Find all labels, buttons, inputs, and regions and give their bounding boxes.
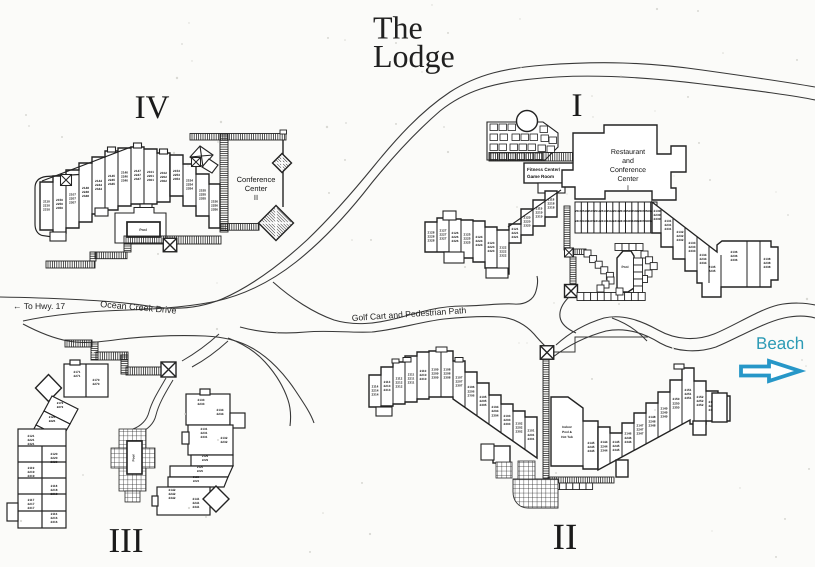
svg-text:214122412341: 214122412341 <box>193 497 200 509</box>
svg-text:211722172317: 211722172317 <box>28 498 35 510</box>
svg-text:212022202320: 212022202320 <box>524 215 531 227</box>
svg-text:Beach: Beach <box>756 334 804 353</box>
svg-text:214922492349: 214922492349 <box>661 406 668 418</box>
svg-text:215622562356: 215622562356 <box>211 199 218 211</box>
svg-text:211422142314: 211422142314 <box>372 384 379 396</box>
svg-text:213422342334: 213422342334 <box>700 253 707 265</box>
svg-text:211822182318: 211822182318 <box>51 484 58 496</box>
svg-text:21712271: 21712271 <box>74 370 81 378</box>
svg-text:211222122312: 211222122312 <box>396 376 403 388</box>
svg-text:212122212321: 212122212321 <box>512 227 519 239</box>
svg-text:211022102310: 211022102310 <box>420 369 427 381</box>
svg-text:21702270: 21702270 <box>93 378 100 386</box>
svg-text:21722272: 21722272 <box>57 401 64 409</box>
svg-text:213122312331: 213122312331 <box>665 219 672 231</box>
svg-text:215222522352: 215222522352 <box>697 395 704 407</box>
svg-text:214822482348: 214822482348 <box>649 415 656 427</box>
svg-text:210722072307: 210722072307 <box>69 192 76 204</box>
svg-text:213122312331: 213122312331 <box>201 427 208 439</box>
svg-text:212022202320: 212022202320 <box>51 452 58 464</box>
svg-text:210122012301: 210122012301 <box>147 170 154 182</box>
svg-text:212522252325: 212522252325 <box>464 232 471 244</box>
svg-text:215022502350: 215022502350 <box>56 198 63 210</box>
svg-text:210822082308: 210822082308 <box>444 367 451 379</box>
svg-text:215022502350: 215022502350 <box>673 397 680 409</box>
svg-text:210422042304: 210422042304 <box>492 405 499 417</box>
svg-text:III: III <box>109 521 144 560</box>
svg-text:210522052305: 210522052305 <box>480 395 487 407</box>
svg-text:214522452345: 214522452345 <box>588 441 595 453</box>
svg-text:214622462346: 214622462346 <box>625 432 632 444</box>
svg-text:IndoorPool &Hot Tub: IndoorPool &Hot Tub <box>561 425 573 439</box>
svg-text:21292229: 21292229 <box>202 454 209 462</box>
svg-text:21232223: 21232223 <box>193 475 200 483</box>
svg-text:210122012301: 210122012301 <box>528 429 535 441</box>
svg-text:I: I <box>572 88 583 124</box>
svg-text:215322532353: 215322532353 <box>173 169 180 181</box>
svg-text:215122512351: 215122512351 <box>685 388 692 400</box>
svg-text:Pool: Pool <box>132 454 136 461</box>
svg-text:210722072307: 210722072307 <box>456 375 463 387</box>
svg-text:215422542354: 215422542354 <box>186 178 193 190</box>
svg-text:213822382338: 213822382338 <box>764 257 771 269</box>
svg-text:II: II <box>553 517 578 558</box>
svg-text:21252225: 21252225 <box>49 415 56 423</box>
svg-text:210222022302: 210222022302 <box>516 422 523 434</box>
svg-text:211622162316: 211622162316 <box>51 512 58 524</box>
svg-text:214822482348: 214822482348 <box>82 186 89 198</box>
svg-text:211922192319: 211922192319 <box>536 206 543 218</box>
svg-text:211022102310: 211022102310 <box>43 199 50 211</box>
svg-text:211322132313: 211322132313 <box>384 380 391 392</box>
svg-text:214722472347: 214722472347 <box>134 169 141 181</box>
svg-text:212622262326: 212622262326 <box>452 231 459 243</box>
svg-text:Pool: Pool <box>622 265 629 269</box>
svg-text:214522452345: 214522452345 <box>613 440 620 452</box>
svg-text:210322032303: 210322032303 <box>504 414 511 426</box>
svg-text:211122112311: 211122112311 <box>408 372 415 384</box>
svg-text:21352235: 21352235 <box>709 265 716 273</box>
svg-text:IV: IV <box>135 90 170 126</box>
svg-text:213222322332: 213222322332 <box>677 230 684 242</box>
svg-text:213622362336: 213622362336 <box>731 250 738 262</box>
svg-text:212322232323: 212322232323 <box>488 241 495 253</box>
svg-text:212122212321: 212122212321 <box>28 434 35 446</box>
svg-text:214222422342: 214222422342 <box>169 488 176 500</box>
svg-text:212722272327: 212722272327 <box>440 228 447 240</box>
svg-text:21332233: 21332233 <box>198 398 205 406</box>
svg-text:215522552355: 215522552355 <box>199 188 206 200</box>
svg-text:212422242324: 212422242324 <box>476 235 483 247</box>
svg-text:214622462346: 214622462346 <box>121 170 128 182</box>
svg-text:← To Hwy. 17: ← To Hwy. 17 <box>13 301 65 311</box>
svg-text:211922192319: 211922192319 <box>28 466 35 478</box>
svg-text:Lodge: Lodge <box>373 38 455 74</box>
svg-text:214722472347: 214722472347 <box>637 423 644 435</box>
svg-text:212822282328: 212822282328 <box>428 230 435 242</box>
svg-text:Pool: Pool <box>139 228 146 232</box>
svg-text:213322332333: 213322332333 <box>689 241 696 253</box>
svg-text:21322232: 21322232 <box>221 436 228 444</box>
svg-text:21252225: 21252225 <box>197 465 204 473</box>
svg-text:214422442344: 214422442344 <box>95 179 102 191</box>
svg-text:214422442344: 214422442344 <box>601 440 608 452</box>
svg-text:214522452345: 214522452345 <box>108 174 115 186</box>
svg-text:210922092309: 210922092309 <box>432 367 439 379</box>
svg-text:212222222322: 212222222322 <box>500 245 507 257</box>
svg-text:210622062306: 210622062306 <box>468 385 475 397</box>
svg-text:210222022302: 210222022302 <box>160 171 167 183</box>
svg-text:21342234: 21342234 <box>217 408 224 416</box>
svg-text:213022302330: 213022302330 <box>654 209 661 221</box>
